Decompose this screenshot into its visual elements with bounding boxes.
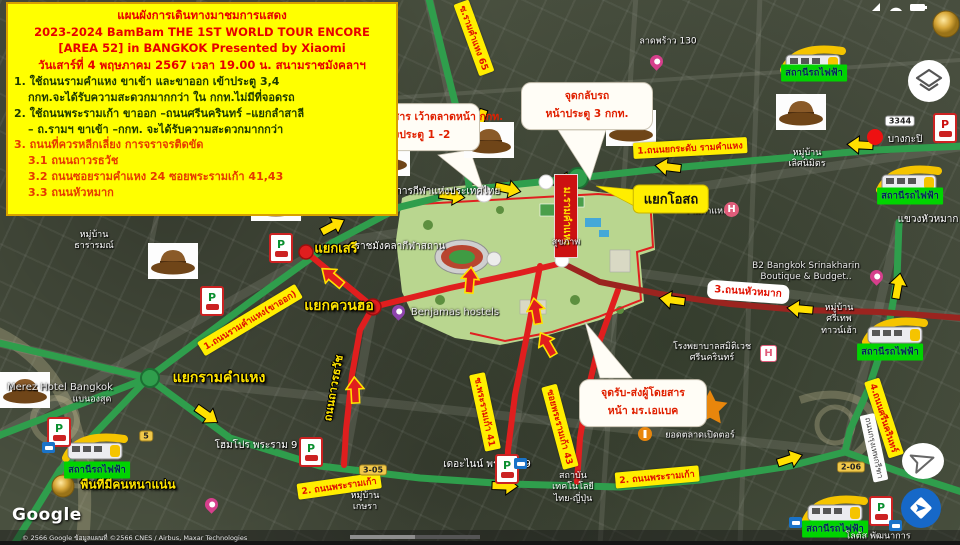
road-shield-3-05: 3-05: [359, 465, 387, 476]
instruction-3-2: 3.2 ถนนซอยรามคำแหง 24 ซอยพระรามเก้า 41,4…: [14, 169, 390, 185]
car-icon: [875, 514, 888, 520]
callout-pickup-abac-line2: หน้า มร.เอแบค: [584, 403, 702, 421]
metro-icon[interactable]: [789, 517, 802, 528]
map-label-bangkapi: บางกะปิ: [888, 134, 923, 147]
tour-venue: [AREA 52] in BANGKOK Presented by Xiaomi: [14, 40, 390, 57]
metro-icon[interactable]: [889, 520, 902, 531]
car-icon: [206, 304, 219, 310]
metro-icon[interactable]: [42, 442, 55, 453]
map-label-lotus: โลตัส พัฒนาการ: [845, 531, 910, 542]
map-label-tni-2: เทคโนโลยี: [552, 482, 594, 493]
poi-dot: [872, 272, 880, 280]
road-shield-2-06: 2-06: [837, 462, 865, 473]
google-maps-button[interactable]: [901, 488, 941, 528]
map-label-tni: สถาบัน เทคโนโลยี ไทย-ญี่ปุ่น: [552, 471, 594, 505]
metro-glyph: [792, 521, 800, 525]
station-label: สถานีรถไฟฟ้า: [64, 462, 130, 479]
transit-icon[interactable]: [514, 458, 527, 469]
map-label-homepro: โฮมโปร พระราม 9: [215, 440, 298, 453]
map-label-kwaeng-huamak: แขวงหัวหมาก: [898, 214, 959, 227]
junction-seri: แยกเสรี: [314, 238, 357, 259]
road-shield-3344: 3344: [885, 116, 915, 127]
parking-letter: P: [941, 119, 949, 130]
map-label-market: ยอดตลาดเปิดตอร์: [665, 430, 735, 441]
status-bar-icons: [872, 3, 927, 11]
map-label-samitivej: โรงพยาบาลสมิติเวช ศรีนครินทร์: [673, 342, 751, 365]
instruction-2b: – ถ.รามฯ ขาเข้า –กกท. จะได้รับความสะดวกม…: [14, 122, 390, 138]
map-label-srithep-2: ศรีเทพ: [821, 314, 857, 325]
map-label-merez-sub: แบนองสุด: [73, 394, 112, 405]
parking-icon[interactable]: P: [299, 437, 323, 467]
metro-glyph: [45, 446, 53, 450]
layers-button[interactable]: [908, 60, 950, 102]
map-label-srithep-3: ทาวน์เฮ้า: [821, 326, 857, 337]
map-label-b2-2: Boutique & Budget..: [752, 272, 860, 283]
instruction-3: 3. ถนนที่ควรหลีกเลี่ยง การจราจรติดขัด: [14, 137, 390, 153]
junction-ramkhamhaeng: แยกรามคำแหง: [173, 367, 266, 389]
map-label-tni-3: ไทย-ญี่ปุ่น: [552, 494, 594, 505]
parking-letter: P: [307, 443, 315, 454]
car-icon: [501, 472, 514, 478]
tour-name: 2023-2024 BamBam THE 1ST WORLD TOUR ENCO…: [14, 24, 390, 41]
road-shield-5: 5: [139, 431, 153, 442]
map-label-samitivej-1: โรงพยาบาลสมิติเวช: [673, 342, 751, 353]
map-label-ladprao130: ลาดพร้าว 130: [639, 36, 696, 47]
tour-date: วันเสาร์ที่ 4 พฤษภาคม 2567 เวลา 19.00 น.…: [14, 57, 390, 74]
map-attribution: © 2566 Google ข้อมูลแผนที่ ©2566 CNES / …: [22, 533, 247, 543]
map-label-tharar-1: หมู่บ้าน: [74, 230, 114, 241]
gold-poi-icon[interactable]: [933, 11, 959, 37]
callout-uturn: จุดกลับรถ หน้าประตู 3 กกท.: [521, 82, 653, 130]
google-logo: Google: [12, 505, 82, 525]
map-label-b2-hotel: B2 Bangkok Srinakharin Boutique & Budget…: [752, 261, 860, 284]
car-icon: [53, 435, 66, 441]
map-label-kesara-1: หมู่บ้าน: [351, 491, 380, 502]
map-label-lertnimit-1: หมู่บ้าน: [788, 148, 825, 159]
instruction-3-1: 3.1 ถนนถาวรธวัช: [14, 153, 390, 169]
plan-title: แผนผังการเดินทางมาชมการแสดง: [14, 7, 390, 24]
station-label: สถานีรถไฟฟ้า: [857, 344, 923, 361]
map-label-samitivej-2: ศรีนครินทร์: [673, 353, 751, 364]
parking-letter: P: [877, 502, 885, 513]
car-icon: [275, 251, 288, 257]
map-label-benjamas: Benjamas hostels: [411, 307, 499, 320]
hospital-icon[interactable]: H: [760, 345, 777, 362]
poi-dot: [207, 500, 215, 508]
callout-uturn-line2: หน้าประตู 3 กกท.: [526, 106, 648, 124]
route-info-panel: แผนผังการเดินทางมาชมการแสดง 2023-2024 Ba…: [6, 2, 398, 216]
hospital-letter: H: [764, 348, 772, 359]
parking-icon-red[interactable]: P: [933, 113, 957, 143]
map-label-kesara: หมู่บ้าน เกษรา: [351, 491, 380, 514]
parking-letter: P: [55, 423, 63, 434]
instruction-3-3: 3.3 ถนนหัวหมาก: [14, 185, 390, 201]
parking-letter: P: [277, 239, 285, 250]
map-canvas[interactable]: แผนผังการเดินทางมาชมการแสดง 2023-2024 Ba…: [0, 0, 960, 545]
instruction-2: 2. ใช้ถนนพระรามเก้า ขาออก –ถนนศรีนครินทร…: [14, 106, 390, 122]
map-label-tharar: หมู่บ้าน ธารารมณ์: [74, 230, 114, 253]
map-label-srithep-1: หมู่บ้าน: [821, 303, 857, 314]
instruction-1b: กกท.จะได้รับความสะดวกมากกว่า ใน กกท.ไม่ม…: [14, 90, 390, 106]
junction-box-osot: แยกโอสถ: [633, 185, 709, 214]
map-label-tni-1: สถาบัน: [552, 471, 594, 482]
directions-send-button[interactable]: [902, 443, 944, 479]
parking-letter: P: [208, 292, 216, 303]
map-label-lertnimit-2: เลิศนิมิตร: [788, 159, 825, 170]
map-label-srithep: หมู่บ้าน ศรีเทพ ทาวน์เฮ้า: [821, 303, 857, 337]
instruction-1: 1. ใช้ถนนรามคำแหง ขาเข้า และขาออก เข้าปร…: [14, 74, 390, 90]
transit-glyph: [517, 462, 525, 466]
map-label-kesara-2: เกษรา: [351, 502, 380, 513]
map-label-b2-1: B2 Bangkok Srinakharin: [752, 261, 860, 272]
car-icon: [939, 131, 952, 137]
restaurant-poi-icon[interactable]: [638, 427, 652, 441]
map-label-sukhapab: สุขภาพ: [552, 237, 581, 248]
hospital-icon[interactable]: H: [724, 202, 739, 217]
map-label-sat: การกีฬาแห่งประเทศไทย: [396, 186, 500, 199]
hospital-letter: H: [727, 204, 735, 215]
callout-pickup-abac: จุดรับ-ส่งผู้โดยสาร หน้า มร.เอแบค: [579, 379, 707, 427]
map-label-lertnimit: หมู่บ้าน เลิศนิมิตร: [788, 148, 825, 171]
callout-pickup-abac-line1: จุดรับ-ส่งผู้โดยสาร: [584, 385, 702, 403]
map-label-rajamangala: ราชมังคลากีฬาสถาน: [355, 241, 446, 254]
junction-kwanho: แยกควนฮอ: [304, 295, 373, 317]
parking-icon[interactable]: P: [269, 233, 293, 263]
station-label: สถานีรถไฟฟ้า: [877, 188, 943, 205]
car-icon: [305, 455, 318, 461]
callout-uturn-line1: จุดกลับรถ: [526, 88, 648, 106]
poi-dot: [394, 307, 402, 315]
map-label-merez-hotel: Merez Hotel Bangkok: [7, 382, 113, 395]
parking-letter: P: [503, 460, 511, 471]
station-label: สถานีรถไฟฟ้า: [781, 65, 847, 82]
metro-glyph: [892, 524, 900, 528]
map-label-tharar-2: ธารารมณ์: [74, 241, 114, 252]
parking-icon[interactable]: P: [200, 286, 224, 316]
poi-dot: [652, 57, 660, 65]
